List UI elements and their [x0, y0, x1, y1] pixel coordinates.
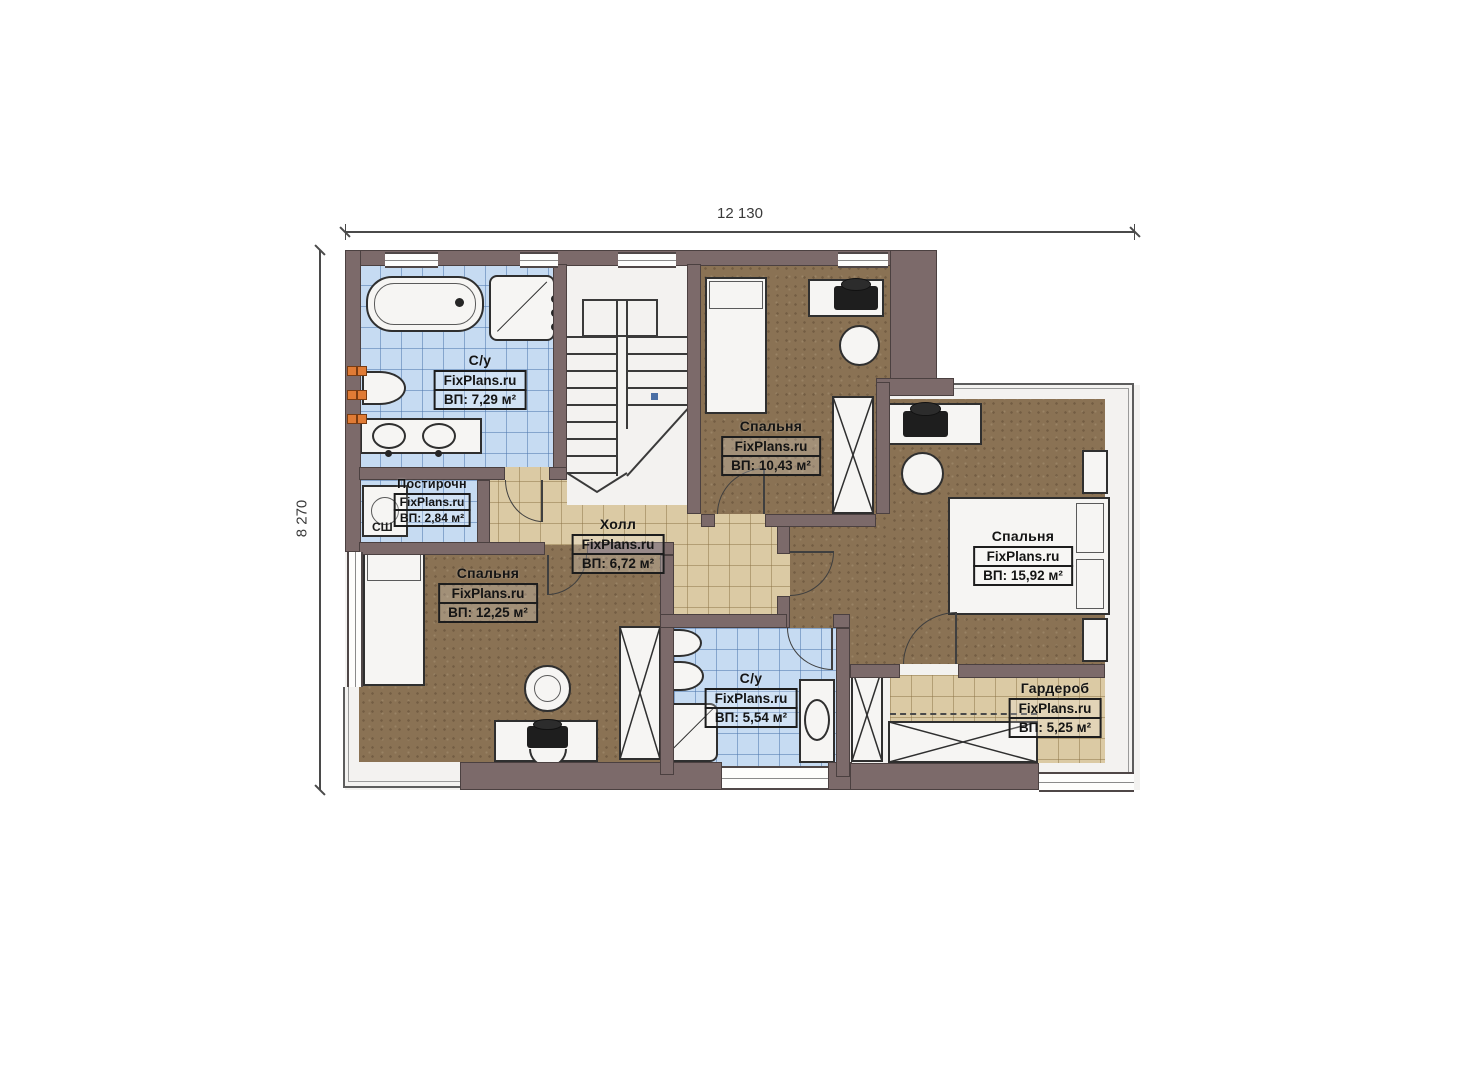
room-name: Спальня [721, 418, 821, 434]
radiator-segment [347, 414, 357, 424]
radiator-segment [357, 390, 367, 400]
room-label-laundry: Постирочн FixPlans.ru ВП: 2,84 м² [394, 477, 471, 527]
printer [834, 286, 878, 310]
window [838, 252, 888, 268]
window [385, 252, 438, 268]
terrace-glazing-inner [348, 687, 477, 782]
plant-pot-inner [534, 675, 561, 702]
window [618, 252, 676, 268]
brand-box: FixPlans.ru [705, 688, 798, 709]
area-box: ВП: 7,29 м² [434, 389, 527, 410]
dimension-height-line [319, 250, 321, 790]
room-name: Холл [572, 516, 665, 532]
room-label-wardrobe: Гардероб FixPlans.ru ВП: 5,25 м² [1009, 680, 1102, 738]
wall [687, 264, 701, 514]
wall [958, 664, 1105, 678]
brand-box: FixPlans.ru [721, 436, 821, 457]
door-leaf [547, 555, 549, 595]
door-leaf [541, 480, 543, 522]
wall [345, 250, 361, 552]
area-box: ВП: 2,84 м² [394, 509, 471, 527]
wardrobe-cabinet [832, 396, 874, 514]
room-label-bedroom-left: Спальня FixPlans.ru ВП: 12,25 м² [438, 565, 538, 623]
sink-bowl [804, 699, 830, 741]
wall [876, 382, 890, 514]
area-box: ВП: 6,72 м² [572, 553, 665, 574]
radiator-segment [347, 390, 357, 400]
brand-box: FixPlans.ru [434, 370, 527, 391]
wall [460, 762, 722, 790]
room-name: Спальня [973, 528, 1073, 544]
window [1039, 772, 1134, 792]
wall [701, 514, 715, 527]
wall [549, 467, 567, 480]
dimension-height-label: 8 270 [294, 489, 311, 549]
area-box: ВП: 10,43 м² [721, 455, 821, 476]
area-box: ВП: 15,92 м² [973, 565, 1073, 586]
wall [850, 664, 900, 678]
dimension-guide [1134, 224, 1135, 240]
window [520, 252, 558, 268]
room-name: Спальня [438, 565, 538, 581]
equipment-label: СШ [372, 520, 393, 534]
room-name: Гардероб [1009, 680, 1102, 696]
area-box: ВП: 5,54 м² [705, 707, 798, 728]
desk-chair [839, 325, 880, 366]
dimension-guide [345, 224, 346, 240]
wall [660, 614, 787, 628]
wall [833, 614, 850, 628]
area-box: ВП: 12,25 м² [438, 602, 538, 623]
room-name: Постирочн [394, 477, 471, 491]
room-name: С/у [705, 670, 798, 686]
brand-box: FixPlans.ru [973, 546, 1073, 567]
printer [903, 411, 948, 437]
room-name: С/у [434, 352, 527, 368]
dimension-width-line [345, 231, 1135, 233]
wall [850, 763, 1039, 790]
brand-box: FixPlans.ru [438, 583, 538, 604]
sink-bowl [422, 423, 456, 449]
room-label-bedroom-top: Спальня FixPlans.ru ВП: 10,43 м² [721, 418, 821, 476]
bed-pillow [709, 281, 763, 309]
shower-cabin [489, 275, 555, 341]
desk-chair [901, 452, 944, 495]
sink-faucet [435, 450, 442, 457]
area-box: ВП: 5,25 м² [1009, 717, 1102, 738]
wall [553, 264, 567, 480]
radiator-segment [347, 366, 357, 376]
sink-bowl [372, 423, 406, 449]
radiator-segment [357, 366, 367, 376]
floor-plan: 12 130 8 270 [0, 0, 1473, 1080]
radiator-segment [357, 414, 367, 424]
printer [527, 726, 568, 748]
wall [765, 514, 876, 527]
wall [836, 628, 850, 777]
room-label-bedroom-right: Спальня FixPlans.ru ВП: 15,92 м² [973, 528, 1073, 586]
door-leaf [790, 551, 834, 553]
door-leaf [955, 612, 957, 664]
wall [660, 555, 674, 775]
dimension-width-label: 12 130 [690, 205, 790, 222]
wall [890, 250, 937, 382]
staircase [567, 264, 701, 505]
room-label-bathroom-upper: С/у FixPlans.ru ВП: 7,29 м² [434, 352, 527, 410]
door-leaf [831, 628, 833, 670]
bed-pillow [367, 553, 421, 581]
brand-box: FixPlans.ru [394, 493, 471, 511]
brand-box: FixPlans.ru [572, 534, 665, 555]
room-label-hall: Холл FixPlans.ru ВП: 6,72 м² [572, 516, 665, 574]
brand-box: FixPlans.ru [1009, 698, 1102, 719]
wardrobe-cabinet [851, 668, 883, 762]
bathtub-faucet [455, 298, 464, 307]
window [722, 766, 828, 790]
window [347, 552, 363, 687]
sink-faucet [385, 450, 392, 457]
wall [359, 542, 545, 555]
room-label-bathroom-lower: С/у FixPlans.ru ВП: 5,54 м² [705, 670, 798, 728]
wardrobe-cabinet [619, 626, 661, 760]
